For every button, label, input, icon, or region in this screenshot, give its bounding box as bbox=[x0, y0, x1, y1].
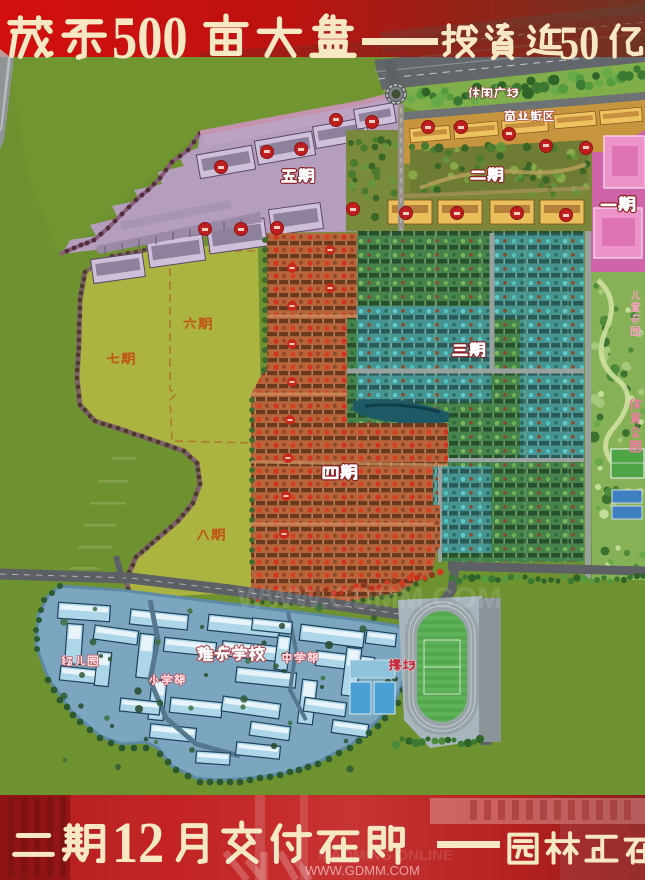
svg-text:50: 50 bbox=[559, 17, 599, 70]
svg-text:12: 12 bbox=[112, 810, 164, 874]
svg-text:WWW.GDMM.COM: WWW.GDMM.COM bbox=[305, 863, 420, 878]
svg-text:500: 500 bbox=[112, 5, 188, 71]
svg-text:MAOMING ONLINE: MAOMING ONLINE bbox=[318, 847, 453, 864]
svg-text:WWW.GDMM.COM: WWW.GDMM.COM bbox=[237, 582, 502, 615]
